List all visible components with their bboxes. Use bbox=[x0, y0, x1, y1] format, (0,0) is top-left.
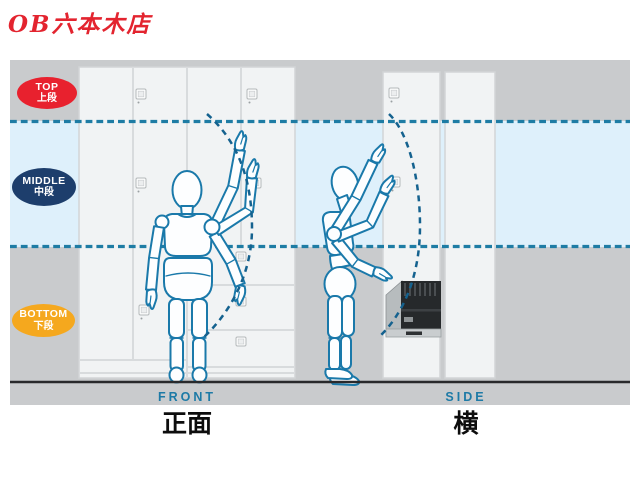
diagram-canvas bbox=[0, 0, 640, 480]
zone-badge-middle: MIDDLE 中段 bbox=[12, 168, 76, 206]
zone-middle-label-ja: 中段 bbox=[12, 187, 76, 198]
side-view-caption-ja: 横 bbox=[391, 404, 541, 440]
zone-badge-top: TOP 上段 bbox=[17, 77, 77, 109]
front-view-caption: FRONT bbox=[112, 390, 262, 404]
zone-top-label-ja: 上段 bbox=[17, 93, 77, 104]
zone-middle-label-en: MIDDLE bbox=[12, 176, 76, 188]
front-view-caption-ja: 正面 bbox=[112, 404, 262, 440]
zone-bottom-label-ja: 下段 bbox=[12, 321, 75, 332]
zone-top-label-en: TOP bbox=[17, 82, 77, 94]
side-view-caption: SIDE bbox=[391, 390, 541, 404]
open-drawer bbox=[386, 281, 441, 337]
zone-badge-bottom: BOTTOM 下段 bbox=[12, 304, 75, 337]
zone-bottom-label-en: BOTTOM bbox=[12, 309, 75, 321]
